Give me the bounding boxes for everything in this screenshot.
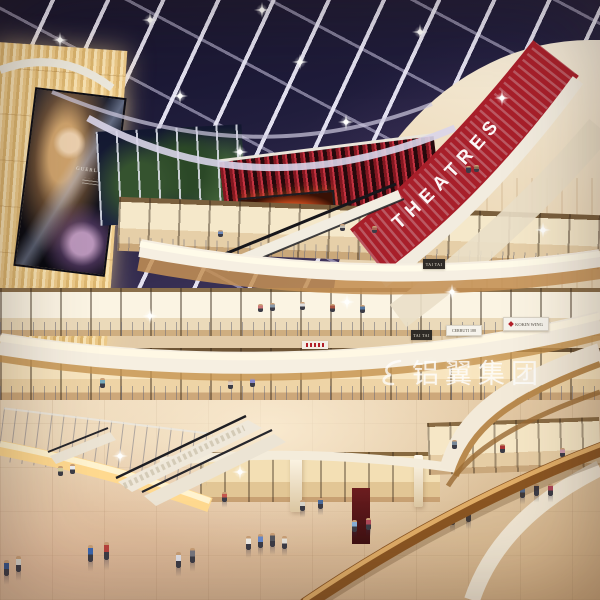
person xyxy=(228,380,233,389)
person xyxy=(58,466,63,476)
person xyxy=(474,165,479,172)
red-diamond-logo xyxy=(508,321,514,327)
ground-court-stores xyxy=(200,452,440,502)
person xyxy=(340,224,345,231)
person xyxy=(466,166,471,173)
person xyxy=(4,560,9,576)
person xyxy=(360,305,365,313)
store-sign-label: KOKIN WING xyxy=(515,322,543,327)
person xyxy=(104,542,109,560)
storefront-level2 xyxy=(0,348,600,400)
person xyxy=(352,520,357,532)
person xyxy=(300,302,305,310)
person xyxy=(190,548,195,563)
person xyxy=(270,303,275,311)
person xyxy=(218,230,223,237)
person xyxy=(270,533,275,547)
mall-atrium-render: GUERLAIN THEATRES xyxy=(0,0,600,600)
person xyxy=(16,556,21,572)
person xyxy=(250,378,255,387)
person xyxy=(534,484,539,496)
store-sign-kokin-wing: KOKIN WING xyxy=(503,317,549,331)
red-store-sign xyxy=(302,341,328,349)
store-sign-cerruti: CERRUTI 188 xyxy=(446,325,482,336)
store-sign-tai-tai-lower: TAI TAI xyxy=(411,330,432,340)
store-sign-label: TAI TAI xyxy=(426,262,442,267)
person xyxy=(466,509,471,522)
person xyxy=(560,448,565,457)
person xyxy=(246,536,251,550)
person xyxy=(318,498,323,509)
person xyxy=(88,545,93,562)
store-sign-label: TAI TAI xyxy=(413,333,429,338)
column xyxy=(414,455,423,507)
store-sign-label: CERRUTI 188 xyxy=(452,328,476,333)
person xyxy=(176,552,181,568)
person xyxy=(372,226,377,233)
person xyxy=(500,444,505,453)
person xyxy=(452,440,457,449)
store-sign-tai-tai-upper: TAI TAI xyxy=(423,259,445,269)
person xyxy=(70,464,75,474)
person xyxy=(366,518,371,530)
person xyxy=(100,378,105,388)
person xyxy=(520,486,525,498)
person xyxy=(282,536,287,549)
person xyxy=(450,512,455,525)
person xyxy=(300,500,305,511)
person xyxy=(330,304,335,312)
person xyxy=(258,304,263,312)
person xyxy=(258,534,263,548)
person xyxy=(222,492,227,502)
person xyxy=(548,484,553,496)
